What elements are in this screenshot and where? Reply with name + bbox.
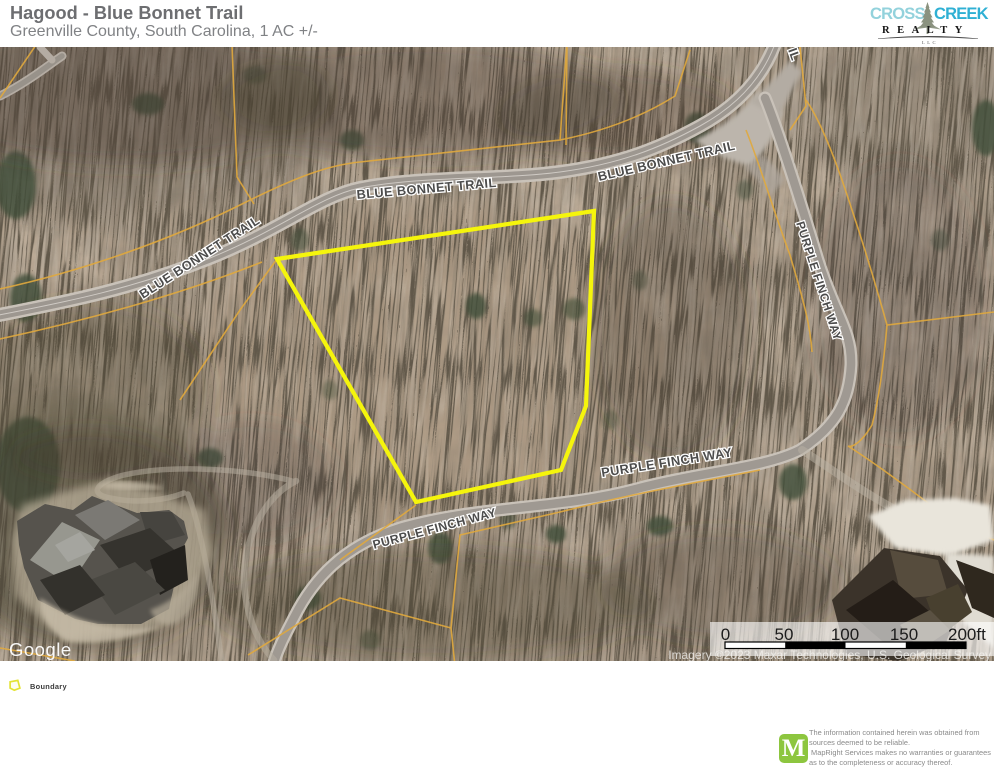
svg-text:Google: Google [9, 639, 72, 660]
svg-text:150: 150 [890, 625, 918, 644]
svg-text:200ft: 200ft [948, 625, 986, 644]
svg-text:CROSS: CROSS [870, 5, 925, 23]
svg-text:0: 0 [721, 625, 730, 644]
svg-text:100: 100 [831, 625, 859, 644]
svg-text:Imagery ©2023 Maxar Technologi: Imagery ©2023 Maxar Technologies, U.S. G… [668, 648, 991, 661]
svg-text:50: 50 [775, 625, 794, 644]
svg-text:LLC: LLC [922, 40, 938, 45]
svg-text:CREEK: CREEK [934, 5, 989, 23]
svg-text:REALTY: REALTY [882, 25, 970, 36]
